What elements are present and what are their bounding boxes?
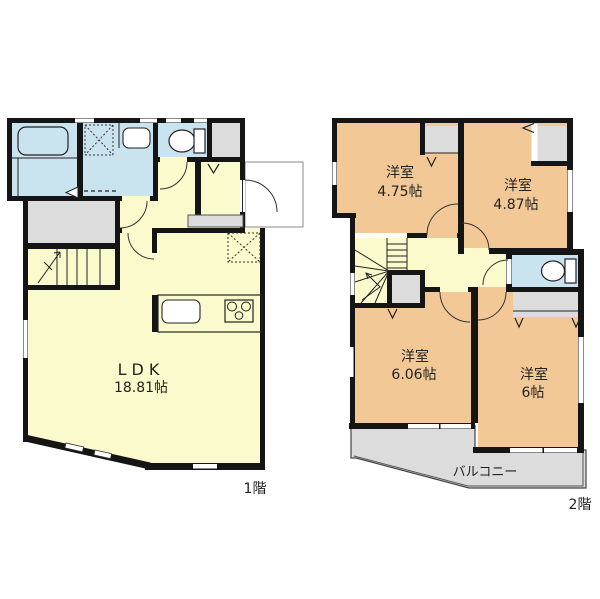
balcony-label: バルコニー bbox=[453, 465, 518, 480]
washroom-sink bbox=[123, 128, 150, 148]
room-6-label: 洋室 bbox=[520, 366, 548, 383]
toilet-bowl-icon bbox=[169, 130, 195, 152]
kitchen-sink bbox=[162, 300, 200, 323]
ldk-label: LDK bbox=[118, 360, 165, 379]
f2-closet-487-door-gap bbox=[532, 124, 538, 161]
room-6-size: 6帖 bbox=[522, 385, 545, 401]
f2-toilet-fixture bbox=[542, 259, 577, 283]
room-475-size: 4.75帖 bbox=[377, 184, 422, 200]
f2-closet-475 bbox=[425, 126, 458, 153]
room-606-size: 6.06帖 bbox=[391, 367, 436, 383]
f1-storage bbox=[28, 201, 115, 247]
f2-closet-stairs bbox=[392, 275, 420, 303]
ldk-size: 18.81帖 bbox=[114, 380, 168, 396]
floor-2-plan: 洋室 4.75帖 洋室 4.87帖 洋室 6.06帖 洋室 6帖 バルコニー 2… bbox=[332, 118, 591, 513]
floor-plan-svg: LDK 18.81帖 1階 bbox=[0, 0, 600, 599]
f2-room-6-doorgap bbox=[478, 287, 506, 292]
f2-hall-doorgap bbox=[440, 287, 468, 292]
f1-toilet bbox=[169, 129, 205, 153]
f2-toilet-door-gap bbox=[507, 259, 512, 284]
toilet-tank-icon bbox=[565, 259, 576, 283]
f1-ldk-floor bbox=[25, 228, 265, 470]
f1-shoe-closet bbox=[212, 123, 240, 157]
floor-1-plan: LDK 18.81帖 1階 bbox=[7, 118, 303, 497]
entrance-step bbox=[188, 215, 243, 227]
toilet-bowl-icon bbox=[542, 261, 565, 281]
f2-room-475-doorgap bbox=[427, 233, 457, 238]
room-487-label: 洋室 bbox=[504, 177, 532, 194]
floor1-label: 1階 bbox=[244, 481, 267, 497]
room-487-size: 4.87帖 bbox=[493, 197, 538, 213]
floor2-label: 2階 bbox=[569, 497, 592, 513]
room-606-label: 洋室 bbox=[401, 348, 429, 365]
toilet-tank-icon bbox=[194, 129, 205, 153]
floorplan-canvas: LDK 18.81帖 1階 bbox=[0, 0, 600, 599]
room-475-label: 洋室 bbox=[386, 164, 414, 181]
f2-closet-6 bbox=[513, 292, 578, 317]
f1-entrance-porch bbox=[245, 162, 303, 227]
f2-closet-487 bbox=[536, 126, 567, 161]
f1-corridor-floor bbox=[115, 196, 158, 233]
